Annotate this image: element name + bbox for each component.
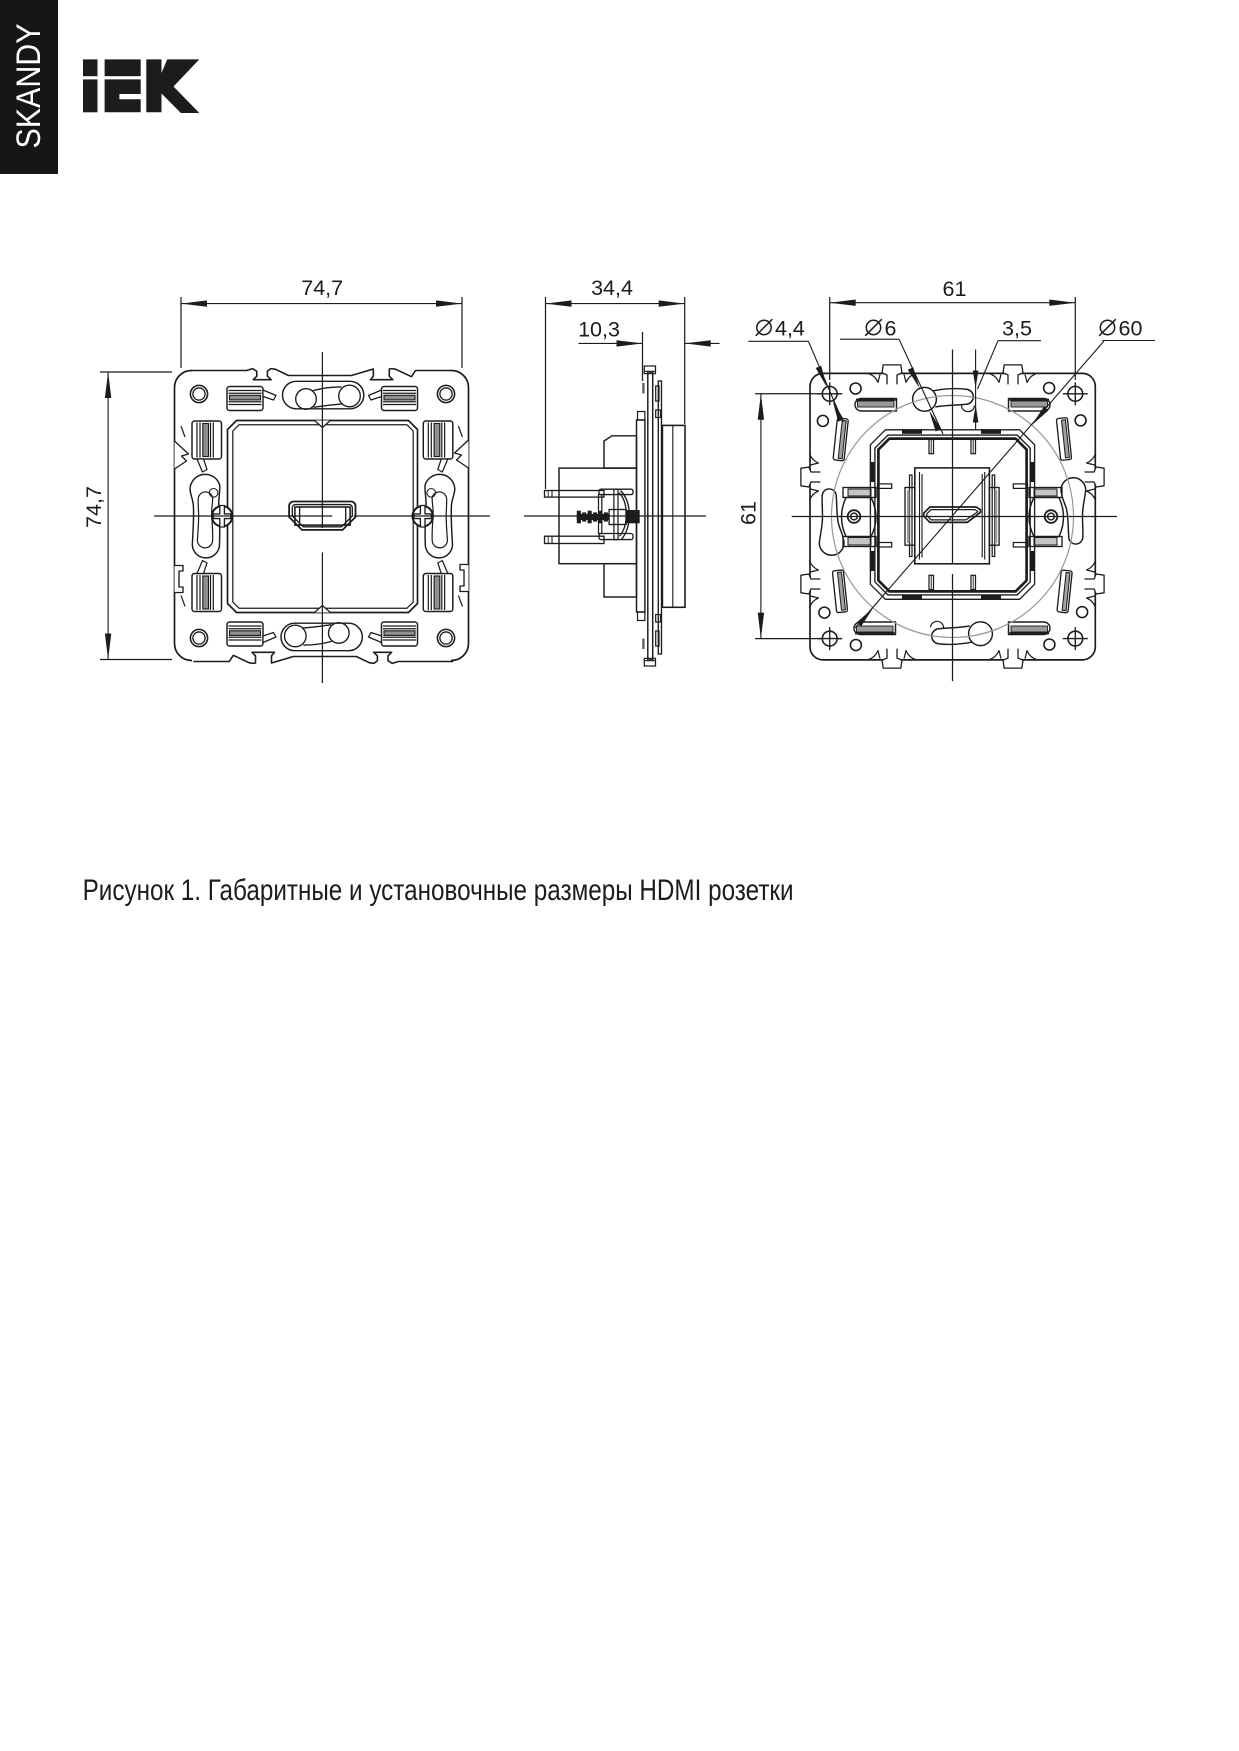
svg-text:61: 61	[737, 501, 761, 525]
svg-text:SKANDY: SKANDY	[10, 24, 48, 149]
svg-text:4,4: 4,4	[775, 317, 805, 341]
svg-text:10,3: 10,3	[578, 318, 620, 342]
svg-text:61: 61	[943, 277, 967, 301]
svg-text:74,7: 74,7	[82, 486, 106, 528]
svg-text:3,5: 3,5	[1002, 317, 1032, 341]
svg-text:60: 60	[1119, 317, 1143, 341]
svg-text:Рисунок 1. Габаритные и устано: Рисунок 1. Габаритные и установочные раз…	[83, 874, 794, 907]
svg-text:74,7: 74,7	[301, 276, 343, 300]
svg-text:34,4: 34,4	[591, 276, 633, 300]
svg-text:6: 6	[885, 317, 897, 341]
